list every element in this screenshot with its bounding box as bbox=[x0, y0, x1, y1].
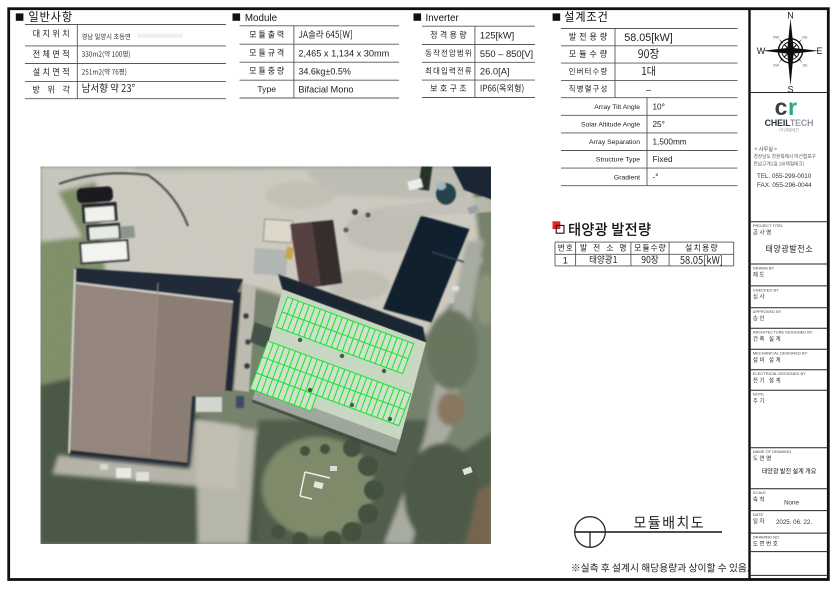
svg-text:c: c bbox=[775, 94, 788, 120]
svg-text:SW: SW bbox=[773, 63, 780, 67]
svg-text:FAX. 055-296-0044: FAX. 055-296-0044 bbox=[757, 182, 812, 189]
svg-text:25°: 25° bbox=[653, 120, 665, 129]
svg-text:125[kW]: 125[kW] bbox=[480, 30, 514, 41]
svg-text:APPROVED BY: APPROVED BY bbox=[753, 309, 782, 314]
svg-text:2025. 06. 22.: 2025. 06. 22. bbox=[776, 519, 812, 526]
svg-text:TEL. 055-299-0010: TEL. 055-299-0010 bbox=[757, 173, 812, 180]
svg-text:Gradient: Gradient bbox=[614, 174, 640, 181]
svg-text:Array Separation: Array Separation bbox=[589, 139, 640, 146]
svg-text:NOTE: NOTE bbox=[753, 392, 764, 397]
svg-text:Inverter: Inverter bbox=[426, 13, 460, 24]
svg-text:CHECKED BY: CHECKED BY bbox=[753, 287, 779, 292]
svg-text:10°: 10° bbox=[653, 102, 665, 111]
svg-text:34.6kg±0.5%: 34.6kg±0.5% bbox=[298, 66, 350, 76]
svg-text:NE: NE bbox=[802, 35, 808, 39]
svg-text:r: r bbox=[788, 94, 797, 120]
svg-text:ELECTRICAL DESIGNED BY: ELECTRICAL DESIGNED BY bbox=[753, 371, 806, 376]
svg-text:Array Tilt Angle: Array Tilt Angle bbox=[594, 104, 640, 111]
svg-text:SE: SE bbox=[802, 63, 808, 67]
svg-text:Structure Type: Structure Type bbox=[596, 157, 640, 164]
svg-text:NW: NW bbox=[773, 35, 780, 39]
svg-text:MECHANICAL DESIGNED BY: MECHANICAL DESIGNED BY bbox=[753, 351, 808, 356]
svg-text:1: 1 bbox=[563, 256, 568, 267]
svg-text:None: None bbox=[784, 500, 799, 507]
svg-text:ARCHITECTURE DESIGNED BY: ARCHITECTURE DESIGNED BY bbox=[753, 330, 813, 335]
svg-text:NAME OF DRAWING: NAME OF DRAWING bbox=[753, 449, 792, 454]
svg-text:-°: -° bbox=[653, 173, 659, 182]
svg-text:CHEILTECH: CHEILTECH bbox=[765, 118, 814, 128]
svg-text:W: W bbox=[757, 46, 766, 56]
svg-text:Bifacial Mono: Bifacial Mono bbox=[298, 84, 353, 94]
svg-text:–: – bbox=[646, 84, 651, 94]
svg-text:DATE: DATE bbox=[753, 512, 764, 517]
svg-text:Type: Type bbox=[257, 84, 276, 94]
svg-text:E: E bbox=[816, 46, 822, 56]
svg-text:26.0[A]: 26.0[A] bbox=[480, 66, 510, 77]
svg-text:DRAWING NO: DRAWING NO bbox=[753, 535, 779, 540]
svg-text:2,465 x 1,134 x 30mm: 2,465 x 1,134 x 30mm bbox=[298, 49, 389, 59]
svg-text:DRAWN BY: DRAWN BY bbox=[753, 265, 775, 270]
svg-text:Module: Module bbox=[245, 13, 278, 24]
svg-text:58.05[kW]: 58.05[kW] bbox=[624, 32, 673, 44]
svg-text:Fixed: Fixed bbox=[653, 155, 673, 164]
svg-text:N: N bbox=[787, 11, 794, 21]
svg-text:550 – 850[V]: 550 – 850[V] bbox=[480, 48, 533, 59]
svg-text:PROJECT TITEL: PROJECT TITEL bbox=[753, 223, 784, 228]
svg-text:Solar Altitude Angle: Solar Altitude Angle bbox=[581, 122, 640, 129]
svg-text:1,500mm: 1,500mm bbox=[653, 138, 687, 147]
svg-text:SCALE: SCALE bbox=[753, 490, 766, 495]
